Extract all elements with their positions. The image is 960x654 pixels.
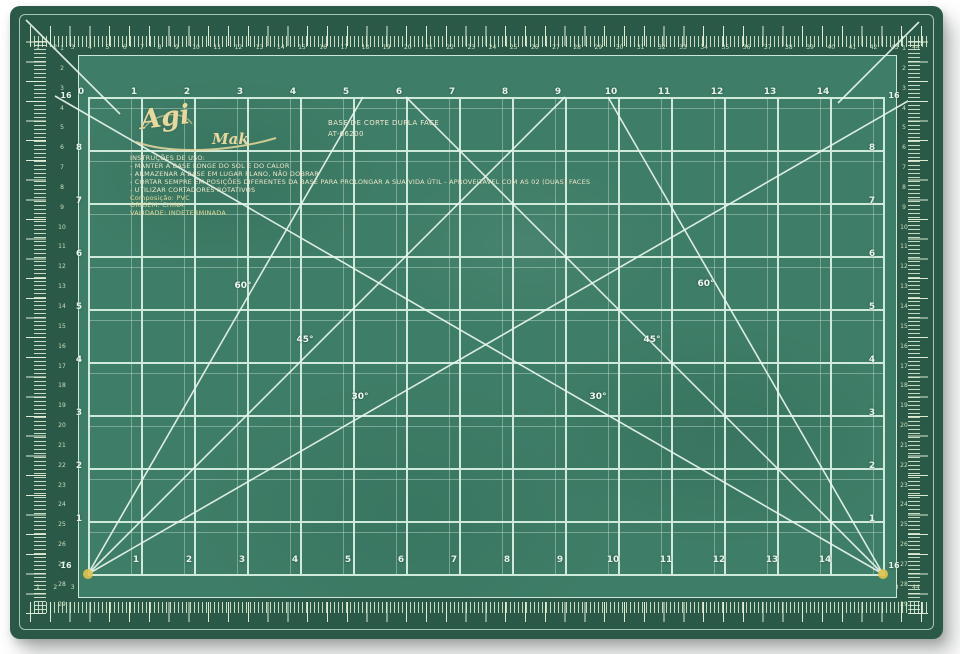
cutting-mat [10, 6, 943, 639]
mat-edge-outline [19, 14, 934, 630]
photo-canvas: 1234567891011121314151617181920212223242… [0, 0, 960, 654]
